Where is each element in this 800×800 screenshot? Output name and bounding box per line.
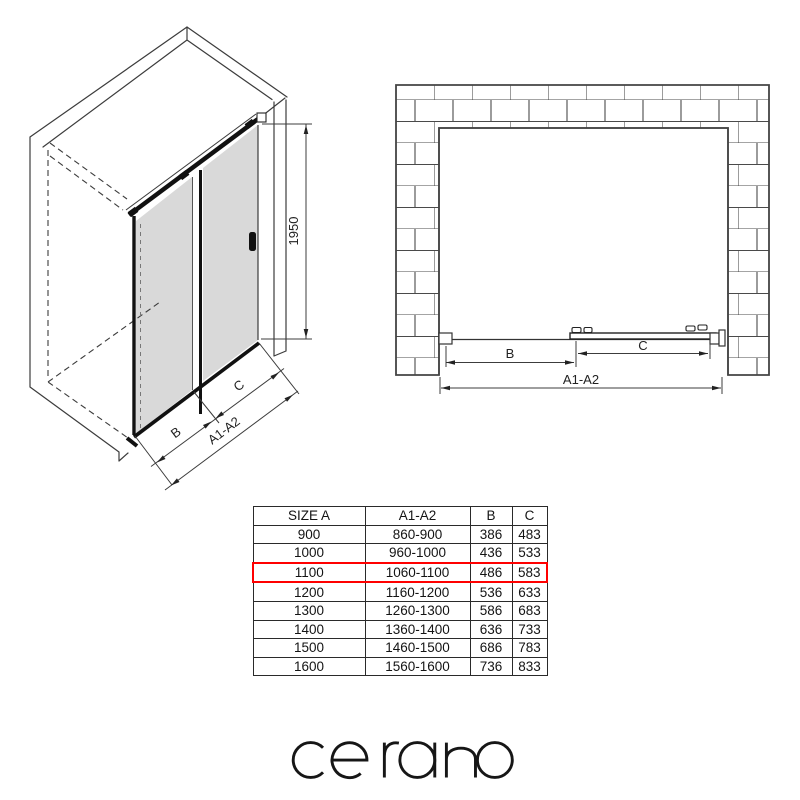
iso-dim-span-label: A1-A2 (205, 414, 243, 448)
spec-sheet-page: 1950 B C A1-A2 (0, 0, 800, 800)
table-cell: 436 (470, 544, 512, 563)
dim-arrow (304, 329, 309, 338)
logo-letter-o (477, 743, 512, 778)
table-cell: 633 (512, 582, 547, 601)
technical-drawings: 1950 B C A1-A2 (0, 0, 800, 800)
table-cell: 683 (512, 601, 547, 620)
table-cell: 1360-1400 (365, 620, 470, 639)
table-cell: 833 (512, 657, 547, 676)
table-cell: 783 (512, 639, 547, 658)
table-cell: 733 (512, 620, 547, 639)
table-cell: 860-900 (365, 525, 470, 544)
plan-dim-b-label: B (506, 346, 515, 361)
table-row: 14001360-1400636733 (253, 620, 547, 639)
plan-view: B C A1-A2 (396, 85, 769, 394)
table-cell: 736 (470, 657, 512, 676)
sliding-glass-panel (203, 125, 258, 381)
logo-letter-r (384, 743, 399, 778)
plan-track-left-cap (439, 333, 452, 344)
table-cell: 536 (470, 582, 512, 601)
table-cell: 533 (512, 544, 547, 563)
fixed-glass-panel (136, 177, 192, 434)
iso-dim-c-label: C (231, 377, 248, 395)
plan-roller-clamps (572, 325, 707, 333)
door-handle (249, 232, 256, 251)
table-cell: 386 (470, 525, 512, 544)
table-row: 1000960-1000436533 (253, 544, 547, 563)
track-end-cap (257, 113, 266, 122)
logo-letter-n (446, 743, 475, 778)
table-header-row: SIZE A A1-A2 B C (253, 507, 547, 526)
table-cell: 1200 (253, 582, 365, 601)
table-cell: 1500 (253, 639, 365, 658)
table-cell: 1260-1300 (365, 601, 470, 620)
table-row: 16001560-1600736833 (253, 657, 547, 676)
table-cell: 636 (470, 620, 512, 639)
table-cell: 486 (470, 563, 512, 583)
plan-dim-span-label: A1-A2 (563, 372, 599, 387)
table-header-size-a: SIZE A (253, 507, 365, 526)
logo-letter-c (293, 743, 323, 778)
iso-dim-b-label: B (168, 424, 184, 441)
table-cell: 483 (512, 525, 547, 544)
table-cell: 1100 (253, 563, 365, 583)
table-row: 11001060-1100486583 (253, 563, 547, 583)
table-cell: 900 (253, 525, 365, 544)
table-header-b: B (470, 507, 512, 526)
table-cell: 1060-1100 (365, 563, 470, 583)
table-cell: 1000 (253, 544, 365, 563)
table-cell: 960-1000 (365, 544, 470, 563)
table-header-c: C (512, 507, 547, 526)
isometric-view: 1950 B C A1-A2 (30, 27, 312, 490)
table-row: 900860-900386483 (253, 525, 547, 544)
table-cell: 686 (470, 639, 512, 658)
table-row: 12001160-1200536633 (253, 582, 547, 601)
size-table-body: 900860-9003864831000960-1000436533110010… (253, 525, 547, 676)
brand-logo: cerano (270, 727, 522, 795)
table-cell: 1460-1500 (365, 639, 470, 658)
plan-track-right-cap (710, 333, 719, 344)
table-cell: 1400 (253, 620, 365, 639)
size-table: SIZE A A1-A2 B C 900860-9003864831000960… (252, 506, 548, 676)
floor-guide-foot (127, 438, 137, 446)
table-cell: 1560-1600 (365, 657, 470, 676)
logo-letter-a (400, 743, 435, 778)
iso-height-label: 1950 (286, 217, 301, 246)
dim-arrow (304, 125, 309, 134)
table-cell: 1160-1200 (365, 582, 470, 601)
plan-wall-bracket (719, 330, 725, 346)
table-row: 13001260-1300586683 (253, 601, 547, 620)
table-cell: 1300 (253, 601, 365, 620)
table-cell: 1600 (253, 657, 365, 676)
table-cell: 583 (512, 563, 547, 583)
logo-letter-e (332, 743, 367, 778)
table-row: 15001460-1500686783 (253, 639, 547, 658)
table-header-a1-a2: A1-A2 (365, 507, 470, 526)
plan-dim-c-label: C (638, 338, 647, 353)
table-cell: 586 (470, 601, 512, 620)
